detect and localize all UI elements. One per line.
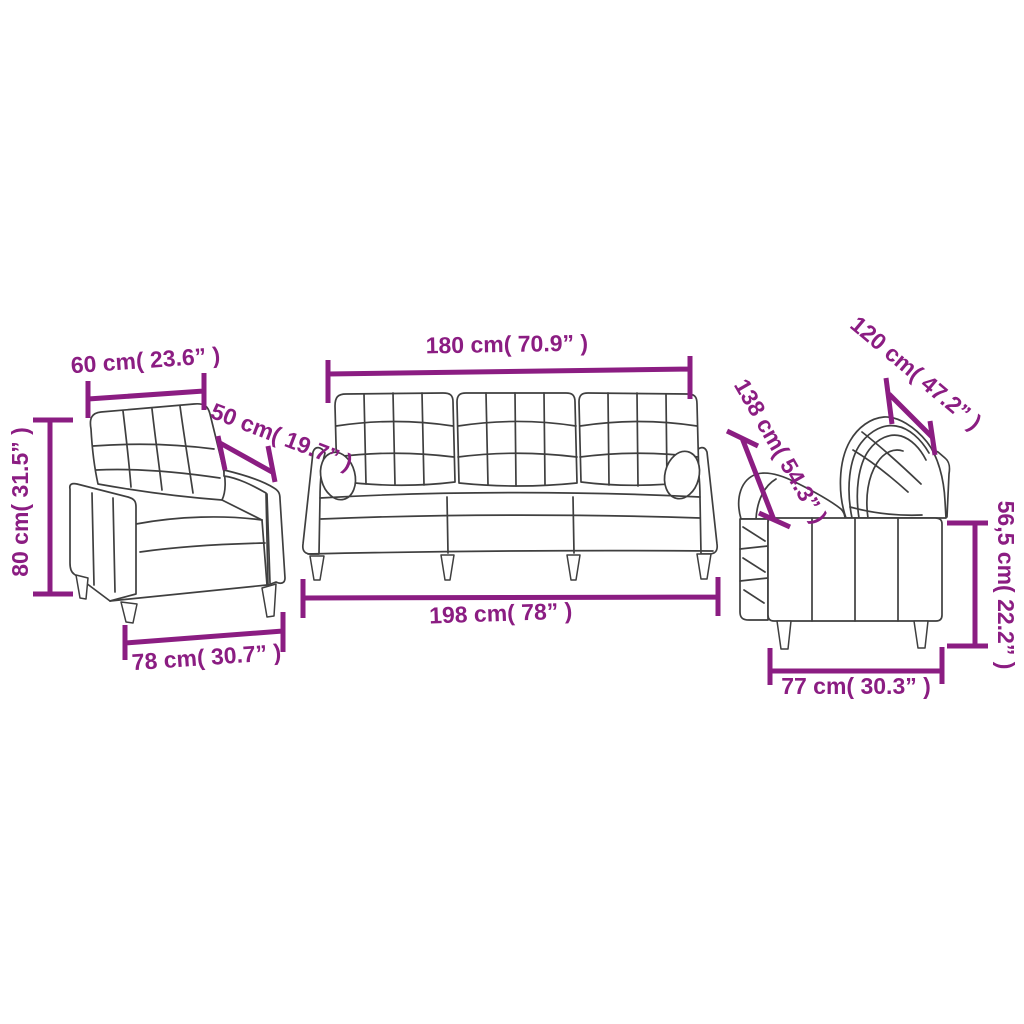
sofa3-seat	[308, 493, 713, 554]
sofa2-height-label: 56,5 cm( 22.2” )	[993, 501, 1019, 670]
sofa2-side-panels	[740, 519, 768, 620]
armchair-right-arm	[224, 470, 285, 585]
dimension-diagram-canvas: 60 cm( 23.6” ) 50 cm( 19.7” ) 80 cm( 31.…	[0, 0, 1024, 1024]
dimension-line	[947, 523, 988, 646]
armchair-base-width-dimension: 78 cm( 30.7” )	[125, 612, 283, 675]
sofa2-base-width-dimension: 77 cm( 30.3” )	[770, 647, 942, 699]
sofa2-base-width-label: 77 cm( 30.3” )	[781, 673, 931, 699]
sofa2-height-dimension: 56,5 cm( 22.2” )	[947, 501, 1019, 670]
sofa3-legs	[310, 554, 711, 580]
sofa-3-seater-drawing	[303, 393, 717, 580]
sofa2-legs	[777, 621, 928, 649]
sofa3-base-width-dimension: 198 cm( 78” )	[303, 577, 718, 628]
armchair-height-dimension: 80 cm( 31.5” )	[7, 420, 73, 595]
armchair-base-width-label: 78 cm( 30.7” )	[131, 639, 282, 675]
armchair-depth-label: 50 cm( 19.7” )	[207, 398, 356, 476]
product-dimension-diagram: 60 cm( 23.6” ) 50 cm( 19.7” ) 80 cm( 31.…	[0, 0, 1024, 1024]
sofa3-width-dimension: 180 cm( 70.9” )	[328, 330, 690, 403]
sofa3-back-cushions	[335, 393, 699, 486]
sofa3-width-label: 180 cm( 70.9” )	[425, 330, 588, 359]
armchair-width-label: 60 cm( 23.6” )	[70, 342, 221, 378]
armchair-depth-dimension: 50 cm( 19.7” )	[207, 398, 356, 482]
sofa2-width-label: 120 cm( 47.2” )	[846, 311, 987, 435]
armchair-height-label: 80 cm( 31.5” )	[7, 427, 33, 577]
sofa3-base-width-label: 198 cm( 78” )	[429, 598, 573, 629]
dimension-line	[33, 420, 73, 595]
